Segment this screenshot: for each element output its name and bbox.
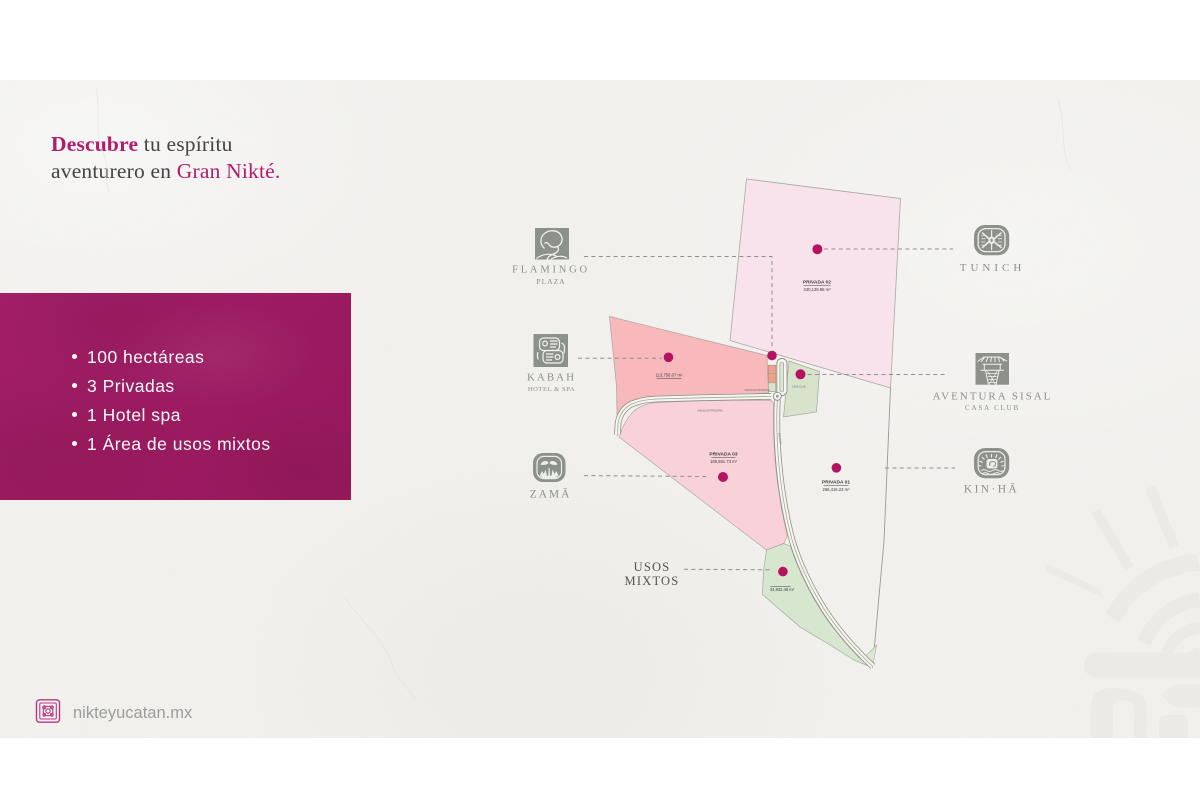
svg-text:340,139.88 m²: 340,139.88 m² [803,287,831,292]
svg-text:VIALIDAD PRINCIPAL: VIALIDAD PRINCIPAL [697,409,724,413]
svg-text:KIN·HĀ: KIN·HĀ [964,483,1019,496]
svg-text:PRIVADA 02: PRIVADA 02 [803,280,832,286]
svg-text:PRIVADA 01: PRIVADA 01 [822,480,851,486]
svg-text:FLAMINGO: FLAMINGO [512,265,590,276]
svg-text:34,932.48 m²: 34,932.48 m² [770,587,795,592]
svg-text:ZAMĀ: ZAMĀ [530,488,572,501]
svg-text:TUNICH: TUNICH [960,262,1026,274]
svg-text:266,416.23 m²: 266,416.23 m² [822,487,850,492]
svg-text:KABAH: KABAH [527,372,576,384]
svg-text:CASA CLUB: CASA CLUB [965,404,1020,412]
svg-text:CASA CLUB: CASA CLUB [792,385,806,388]
svg-text:PRIVADA 03: PRIVADA 03 [709,452,738,458]
svg-text:HOTEL & SPA: HOTEL & SPA [528,386,575,393]
svg-text:169,551.73 m²: 169,551.73 m² [710,459,738,464]
svg-text:AVENTURA SISAL: AVENTURA SISAL [933,391,1053,403]
svg-text:USOS: USOS [634,560,671,574]
svg-text:VIALIDAD PRINCIPAL: VIALIDAD PRINCIPAL [744,388,771,392]
svg-text:PLAZA: PLAZA [536,277,565,286]
svg-text:113,756.07 m²: 113,756.07 m² [656,373,683,378]
svg-text:MIXTOS: MIXTOS [625,574,680,588]
